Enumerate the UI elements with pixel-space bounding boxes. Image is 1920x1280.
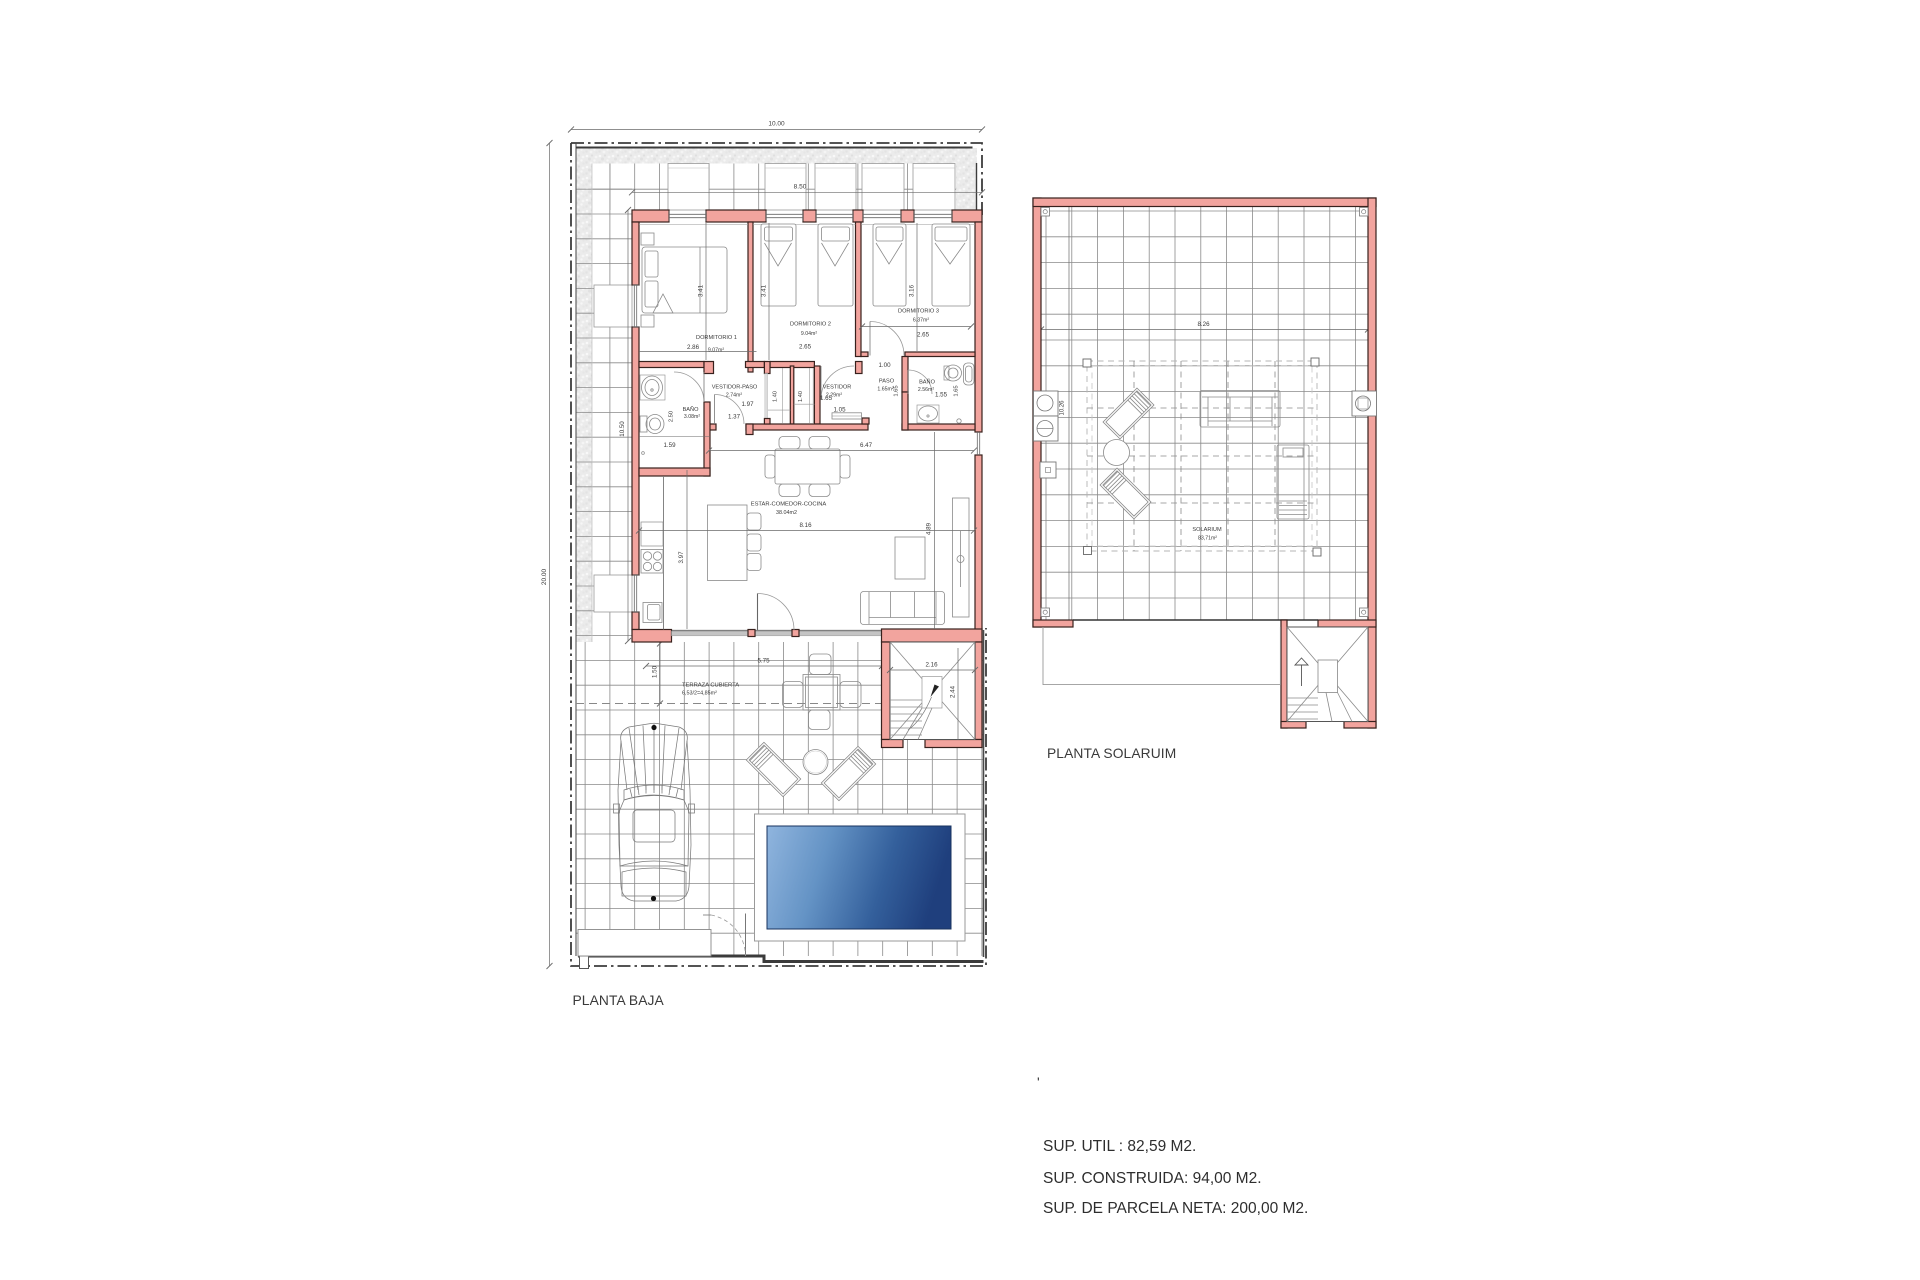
svg-text:3.16: 3.16 [909, 284, 916, 297]
svg-text:4.89: 4.89 [926, 522, 933, 535]
svg-text:VESTIDOR-PASO: VESTIDOR-PASO [712, 385, 758, 391]
svg-text:2.29m²: 2.29m² [826, 393, 842, 399]
svg-text:1.40: 1.40 [798, 391, 804, 402]
svg-text:20.00: 20.00 [541, 568, 548, 585]
svg-text:1.00: 1.00 [878, 362, 891, 369]
svg-text:6.47: 6.47 [860, 442, 873, 449]
svg-text:PLANTA BAJA: PLANTA BAJA [573, 993, 665, 1008]
svg-text:DORMITORIO 3: DORMITORIO 3 [898, 309, 939, 315]
svg-text:DORMITORIO 2: DORMITORIO 2 [790, 322, 831, 328]
svg-text:1.65: 1.65 [954, 385, 960, 396]
svg-text:3.08m²: 3.08m² [684, 414, 700, 420]
svg-text:10.26: 10.26 [1060, 400, 1066, 416]
svg-text:SOLARIUM: SOLARIUM [1192, 527, 1222, 533]
svg-text:8.26: 8.26 [1197, 321, 1210, 328]
svg-text:1.97: 1.97 [741, 401, 754, 408]
svg-text:38.04m2: 38.04m2 [776, 510, 797, 516]
svg-text:2.65: 2.65 [799, 344, 812, 351]
svg-text:': ' [1037, 1074, 1040, 1090]
svg-text:2.65: 2.65 [917, 332, 930, 339]
svg-text:1.59: 1.59 [663, 442, 676, 449]
svg-text:1.40: 1.40 [772, 391, 778, 402]
svg-text:3.41: 3.41 [698, 284, 705, 297]
svg-text:3.41: 3.41 [761, 284, 768, 297]
svg-text:SUP. UTIL : 82,59 M2.: SUP. UTIL : 82,59 M2. [1043, 1138, 1196, 1155]
svg-text:9.07m²: 9.07m² [708, 348, 724, 354]
svg-text:PASO: PASO [879, 379, 895, 385]
svg-text:3.97: 3.97 [678, 551, 685, 564]
svg-text:SUP. CONSTRUIDA: 94,00 M2.: SUP. CONSTRUIDA: 94,00 M2. [1043, 1170, 1262, 1187]
svg-text:BAÑO: BAÑO [919, 379, 936, 386]
svg-text:2.44: 2.44 [950, 685, 957, 698]
svg-text:2.74m²: 2.74m² [726, 393, 742, 399]
svg-text:10.50: 10.50 [619, 421, 626, 437]
svg-text:1.55: 1.55 [935, 392, 948, 399]
svg-text:PLANTA SOLARUIM: PLANTA SOLARUIM [1047, 746, 1176, 761]
svg-text:9.04m²: 9.04m² [801, 331, 817, 337]
svg-text:2.16: 2.16 [925, 662, 938, 669]
svg-text:10.00: 10.00 [768, 121, 785, 128]
svg-text:8.16: 8.16 [799, 522, 812, 529]
svg-text:BAÑO: BAÑO [683, 406, 700, 413]
svg-text:5.75: 5.75 [757, 658, 770, 665]
svg-text:SUP. DE PARCELA NETA: 200,00 M: SUP. DE PARCELA NETA: 200,00 M2. [1043, 1200, 1308, 1217]
svg-text:VESTIDOR: VESTIDOR [823, 385, 852, 391]
svg-text:2.86: 2.86 [687, 344, 700, 351]
svg-text:6.37m²: 6.37m² [913, 318, 929, 324]
svg-text:ESTAR-COMEDOR-COCINA: ESTAR-COMEDOR-COCINA [751, 502, 827, 508]
svg-text:1.50: 1.50 [652, 665, 659, 678]
svg-text:TERRAZA CUBIERTA: TERRAZA CUBIERTA [682, 683, 739, 689]
svg-text:2.56m²: 2.56m² [918, 387, 934, 393]
svg-text:1.05: 1.05 [833, 407, 846, 414]
svg-text:1.65: 1.65 [894, 385, 900, 396]
svg-text:83,71m²: 83,71m² [1198, 536, 1217, 542]
svg-text:2.50: 2.50 [669, 411, 675, 422]
svg-text:6,53/2=4,85m²: 6,53/2=4,85m² [682, 691, 717, 697]
svg-text:1.37: 1.37 [728, 414, 741, 421]
svg-text:DORMITORIO 1: DORMITORIO 1 [696, 335, 737, 341]
svg-text:1.65m²: 1.65m² [877, 387, 893, 393]
svg-text:8.50: 8.50 [794, 184, 807, 191]
